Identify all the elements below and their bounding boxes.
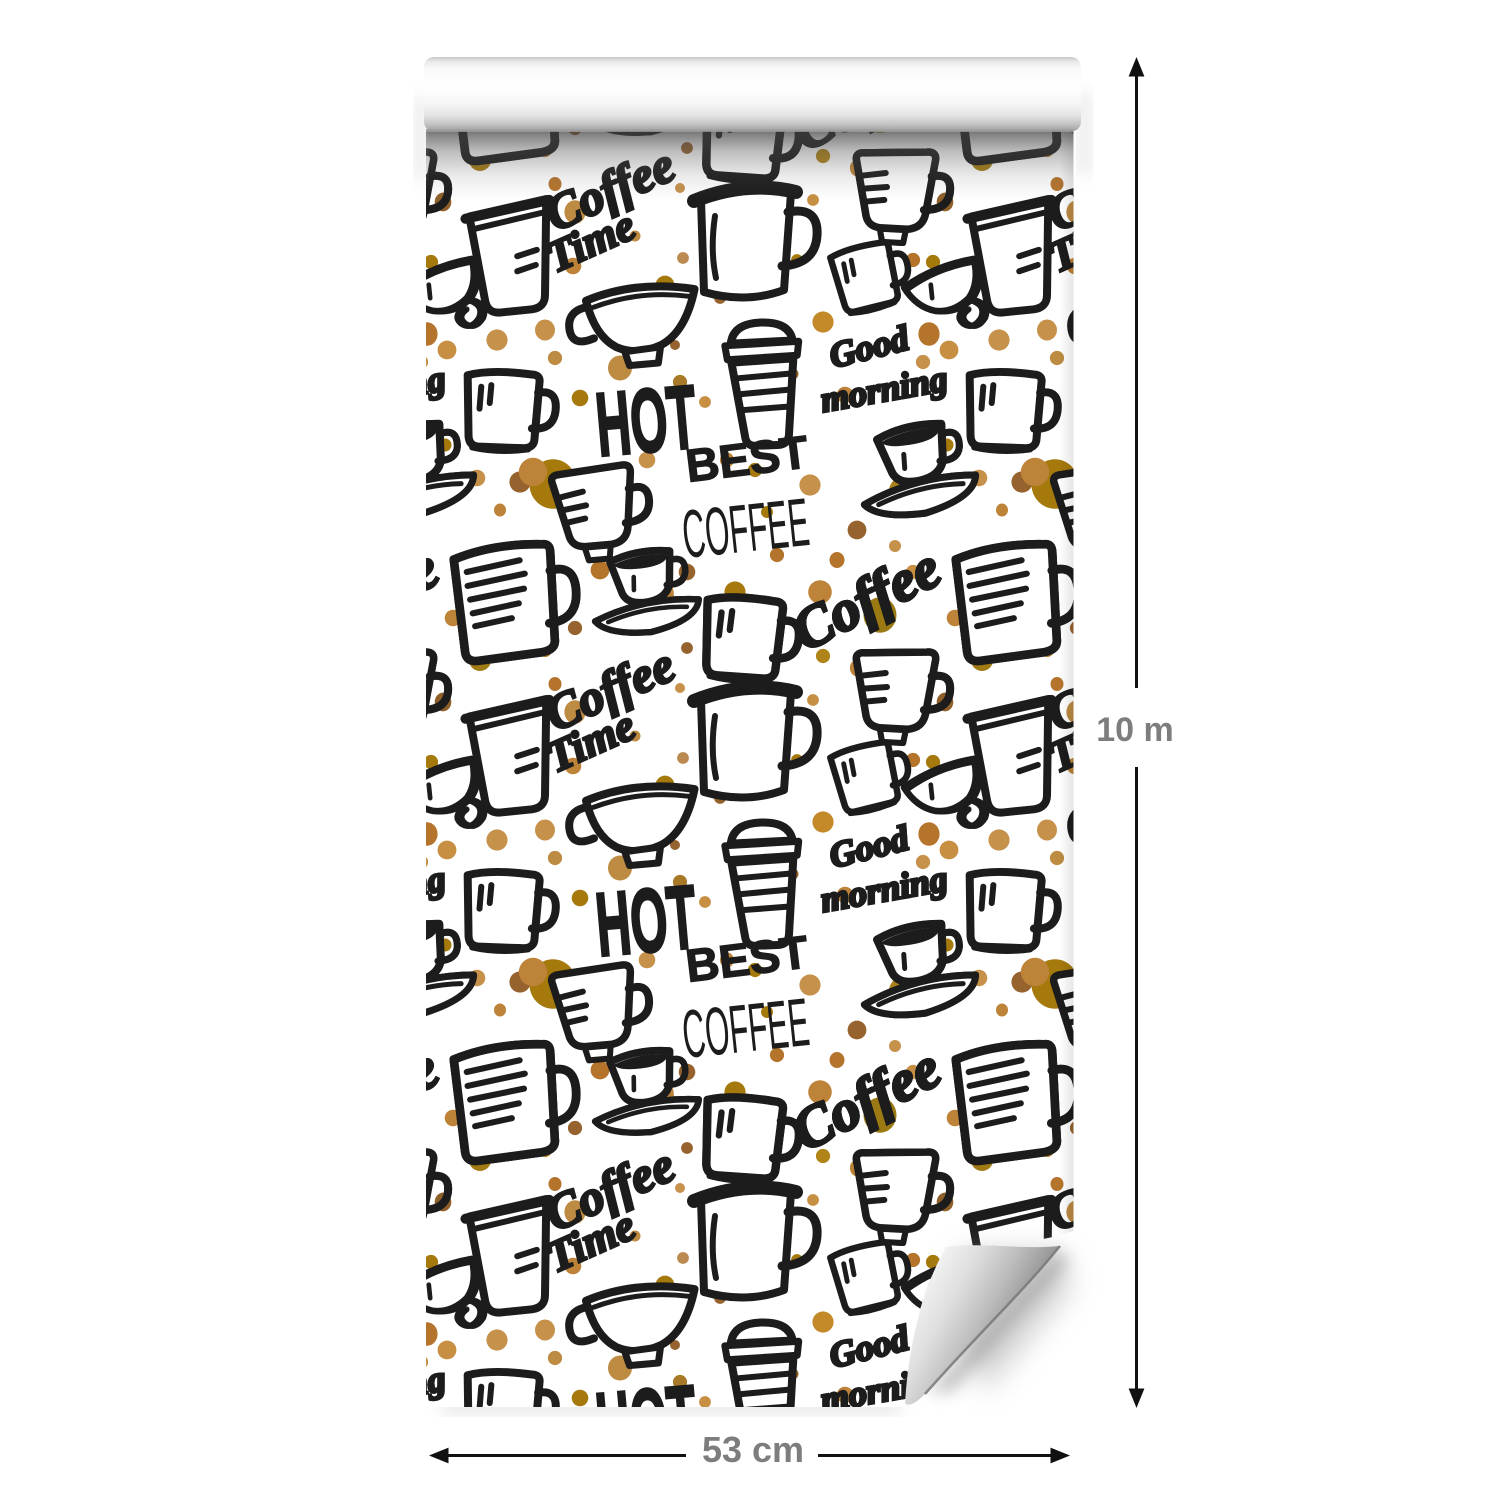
svg-text:53 cm: 53 cm xyxy=(702,1429,804,1470)
svg-text:10 m: 10 m xyxy=(1096,711,1174,749)
